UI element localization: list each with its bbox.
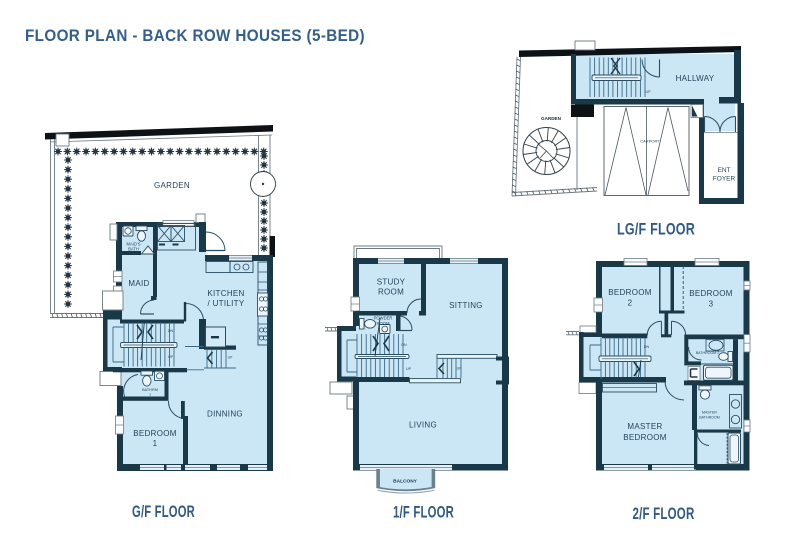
svg-text:HALLWAY: HALLWAY xyxy=(676,74,715,83)
svg-text:UP: UP xyxy=(457,367,462,371)
svg-text:BATHROOM: BATHROOM xyxy=(699,415,720,419)
svg-text:2: 2 xyxy=(628,299,633,308)
svg-text:BATHROOM 2: BATHROOM 2 xyxy=(696,351,720,355)
svg-text:ROOM: ROOM xyxy=(378,288,404,297)
svg-text:BEDROOM: BEDROOM xyxy=(689,289,732,298)
svg-text:ENT: ENT xyxy=(718,167,731,174)
svg-text:SITTING: SITTING xyxy=(449,301,483,310)
svg-text:MASTER: MASTER xyxy=(702,410,717,414)
svg-text:UP: UP xyxy=(646,90,652,94)
svg-text:DN: DN xyxy=(401,343,407,347)
svg-text:LG/F FLOOR: LG/F FLOOR xyxy=(617,221,695,239)
svg-text:CARPORT: CARPORT xyxy=(640,139,660,144)
svg-text:DN: DN xyxy=(168,329,174,333)
svg-text:FOYER: FOYER xyxy=(713,176,736,183)
svg-text:1: 1 xyxy=(153,439,158,448)
svg-text:UP: UP xyxy=(406,367,412,371)
svg-text:MAID: MAID xyxy=(128,279,149,288)
svg-text:UP: UP xyxy=(168,355,174,359)
svg-text:GARDEN: GARDEN xyxy=(541,116,562,121)
svg-text:ROOM: ROOM xyxy=(376,321,390,326)
svg-text:KITCHEN: KITCHEN xyxy=(207,289,244,298)
svg-text:STUDY: STUDY xyxy=(377,278,406,287)
svg-text:LIVING: LIVING xyxy=(409,421,437,430)
svg-text:1: 1 xyxy=(149,393,151,397)
svg-text:DINNING: DINNING xyxy=(207,410,243,419)
svg-text:1/F FLOOR: 1/F FLOOR xyxy=(393,504,454,522)
svg-text:GARDEN: GARDEN xyxy=(154,181,190,190)
svg-text:BALCONY: BALCONY xyxy=(393,479,418,485)
svg-text:BEDROOM: BEDROOM xyxy=(608,288,651,297)
svg-text:MASTER: MASTER xyxy=(627,422,662,431)
svg-text:/ UTILITY: / UTILITY xyxy=(208,299,245,308)
svg-text:2/F FLOOR: 2/F FLOOR xyxy=(633,505,695,523)
svg-text:G/F FLOOR: G/F FLOOR xyxy=(132,503,195,521)
svg-text:3: 3 xyxy=(709,300,714,309)
svg-text:BEDROOM: BEDROOM xyxy=(623,433,666,442)
svg-text:POWDER: POWDER xyxy=(374,316,393,321)
svg-text:BATH: BATH xyxy=(128,247,139,252)
svg-text:UP: UP xyxy=(228,356,233,360)
svg-text:FLOOR PLAN - BACK ROW HOUSES (: FLOOR PLAN - BACK ROW HOUSES (5-BED) xyxy=(25,27,365,45)
svg-text:BATHRM: BATHRM xyxy=(142,388,158,392)
svg-text:DN: DN xyxy=(644,345,650,349)
svg-text:BEDROOM: BEDROOM xyxy=(133,429,176,438)
